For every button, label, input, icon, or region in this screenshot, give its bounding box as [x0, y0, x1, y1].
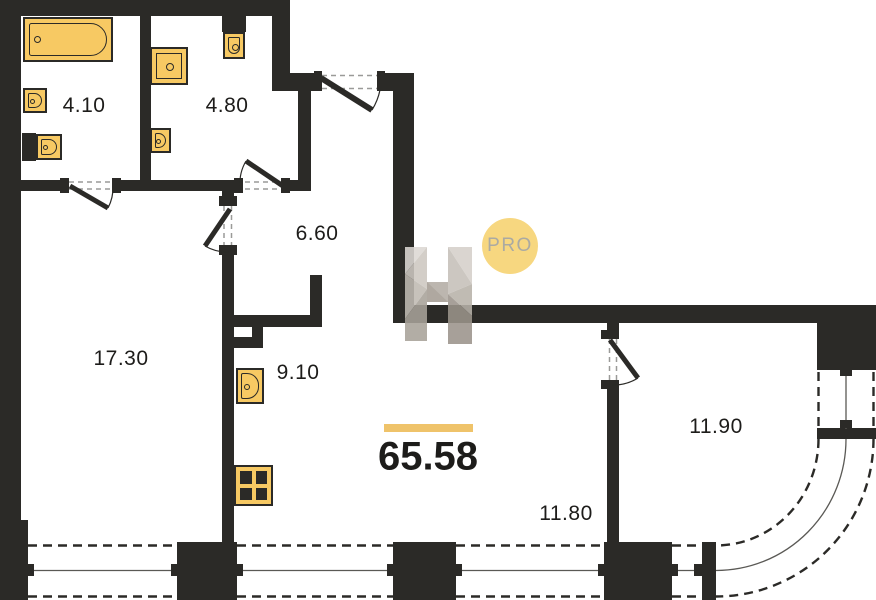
pro-badge: PRO [482, 218, 538, 274]
kitchen-sink-icon [236, 368, 264, 404]
wc-toilet-icon [223, 32, 245, 59]
door-livingroom-arc [205, 246, 229, 252]
bathroom-sink-icon [23, 88, 47, 113]
room-label-bathroom: 4.10 [63, 94, 106, 118]
toilet-tank-icon [22, 133, 36, 161]
total-area-accent-bar [384, 424, 473, 432]
room-label-living-dining: 11.80 [539, 502, 593, 526]
door-leaves [70, 78, 638, 385]
door-livingroom-leaf [205, 209, 230, 246]
bathtub-icon [23, 17, 113, 62]
room-label-living-room: 17.30 [93, 347, 148, 371]
door-entrance-leaf [321, 78, 372, 110]
wc-toilet-tank-icon [222, 16, 246, 32]
pro-badge-label: PRO [487, 235, 533, 257]
h-logo-watermark [402, 244, 476, 346]
room-label-bedroom: 11.90 [689, 415, 743, 439]
room-label-hallway: 6.60 [296, 222, 339, 246]
total-area-value: 65.58 [378, 435, 478, 480]
stove-icon [234, 465, 273, 506]
toilet-icon [36, 134, 62, 160]
floor-plan: PRO 4.10 4.80 6.60 17.30 9.10 11.80 11.9… [0, 0, 876, 600]
window-curve [716, 439, 874, 597]
door-entrance-arc [372, 90, 380, 110]
wash-basin-icon [150, 128, 171, 153]
room-label-kitchen: 9.10 [277, 361, 320, 385]
shower-cabin-icon [150, 47, 188, 85]
room-label-shower-wc: 4.80 [206, 94, 249, 118]
door-bedroom-leaf [610, 340, 638, 378]
door-opening-dashes [69, 76, 617, 381]
